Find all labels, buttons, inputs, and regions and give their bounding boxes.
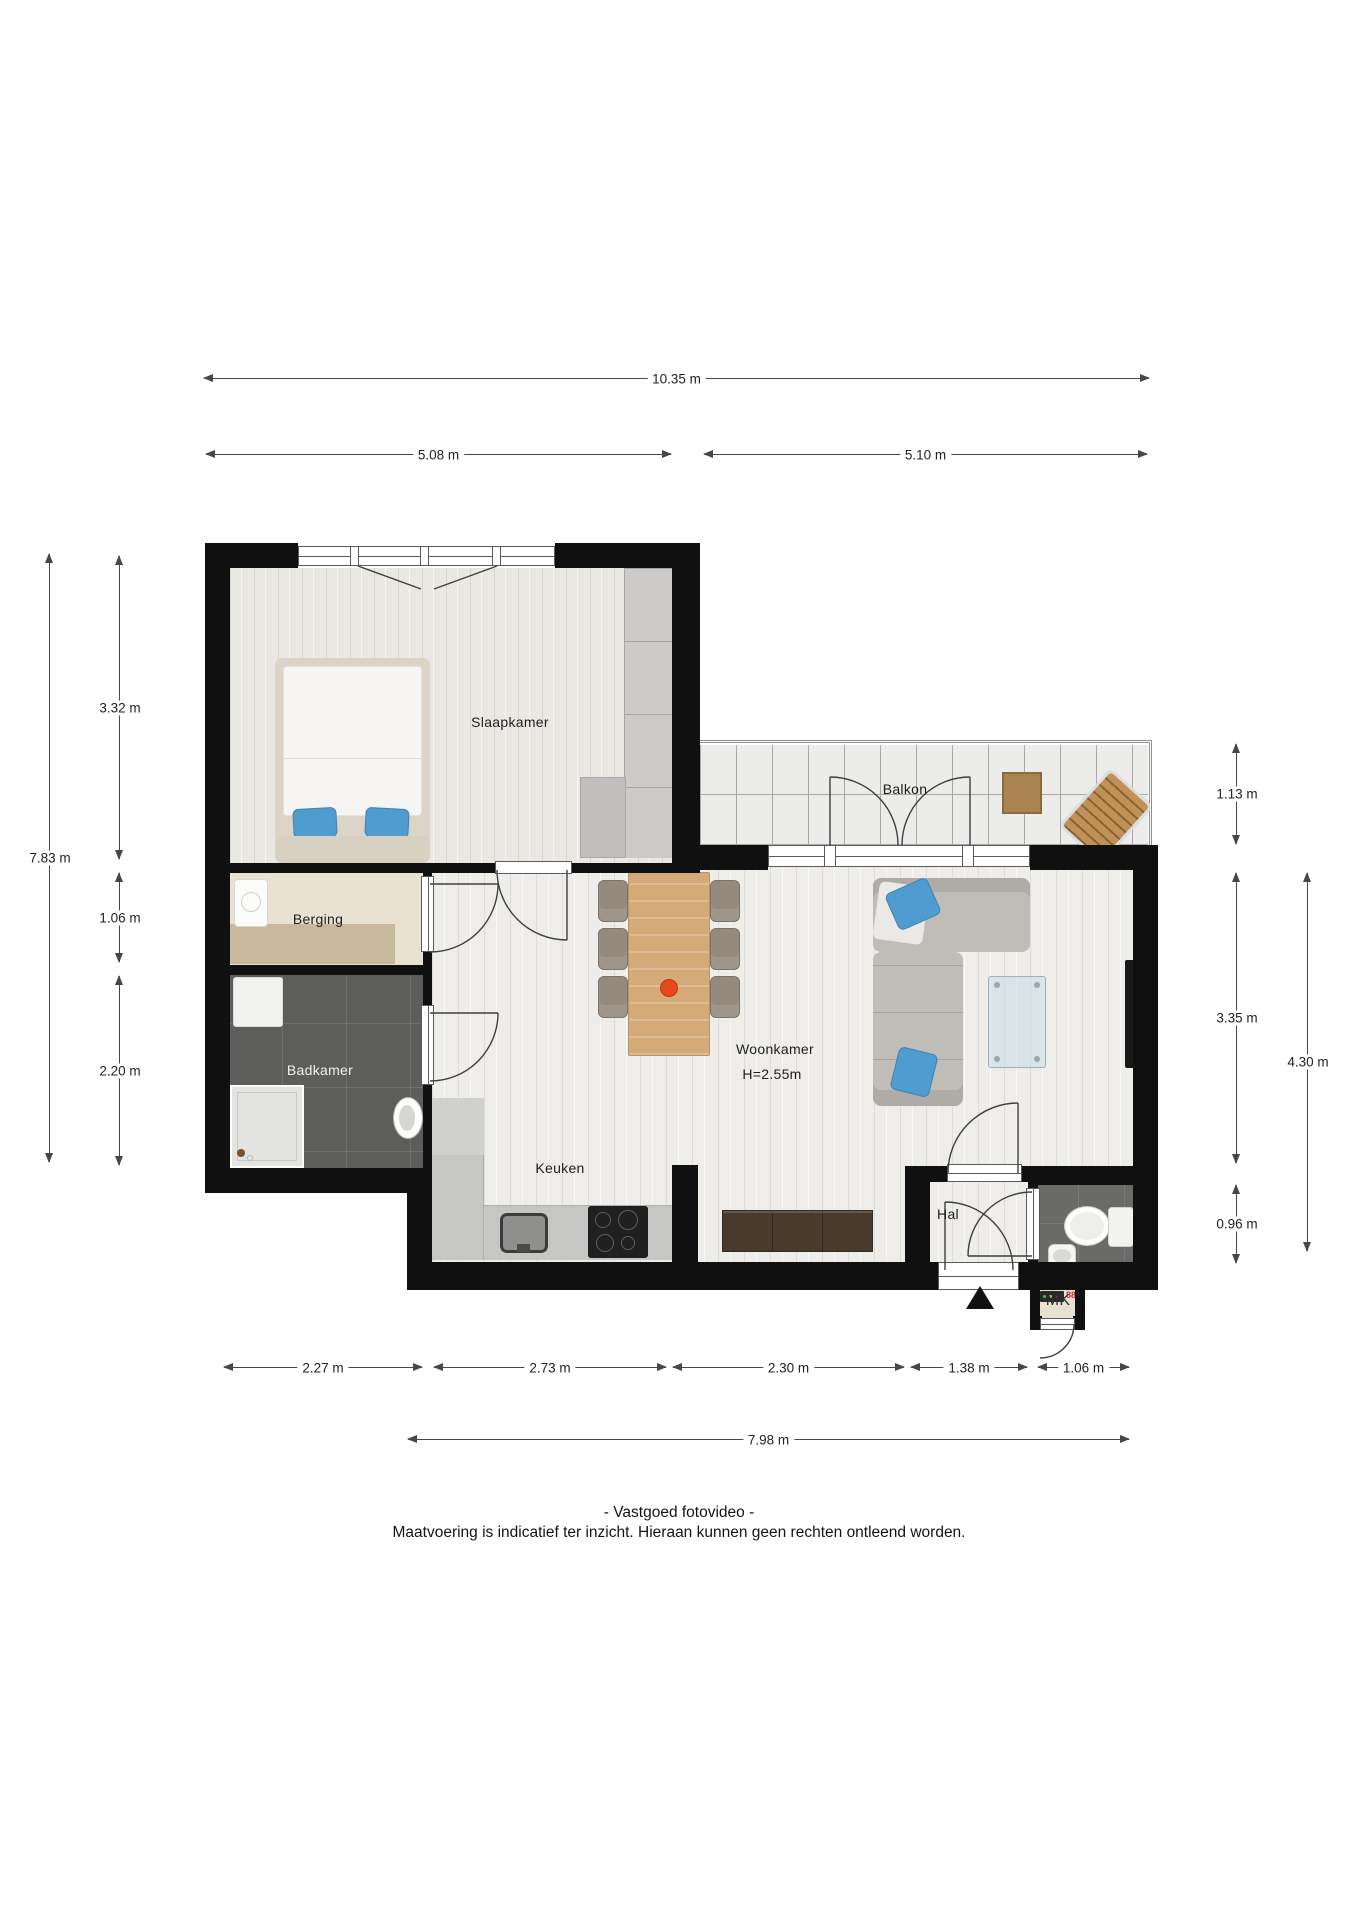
wall-segment <box>205 1168 423 1193</box>
shower-accessory-icon <box>237 1149 245 1157</box>
room-label-hal: Hal <box>937 1206 959 1222</box>
footer-disclaimer: Maatvoering is indicatief ter inzicht. H… <box>0 1524 1358 1542</box>
dim-total-width: 10.35 m <box>203 372 1150 386</box>
room-label-toilet: Toilet <box>1069 1219 1103 1235</box>
wall-segment <box>672 1165 698 1262</box>
dining-chair <box>598 880 628 922</box>
bed-pillow-right <box>364 807 410 839</box>
dim-left-badkamer: 2.20 m <box>113 975 127 1166</box>
room-label-woonkamer-height: H=2.55m <box>742 1066 801 1082</box>
dining-chair <box>710 880 740 922</box>
dim-left-slaapkamer: 3.32 m <box>113 555 127 860</box>
room-label-keuken: Keuken <box>535 1160 584 1176</box>
sideboard <box>722 1210 873 1252</box>
wall-segment <box>205 965 432 975</box>
washing-machine <box>234 879 268 927</box>
toilet-cistern <box>1108 1207 1134 1247</box>
berging-rug <box>230 924 395 964</box>
wall-segment <box>1133 845 1158 1290</box>
footer-credit: - Vastgoed fotovideo - <box>0 1504 1358 1522</box>
dim-right-woonkamer: 3.35 m <box>1230 872 1244 1164</box>
shower-drain-icon <box>247 1155 253 1161</box>
floor-plan-canvas: 88 <box>0 0 1358 1920</box>
room-label-berging: Berging <box>293 911 343 927</box>
dim-left-total: 7.83 m <box>43 553 57 1163</box>
wall-segment <box>1030 845 1133 870</box>
dim-right-total: 4.30 m <box>1301 872 1315 1252</box>
wall-segment <box>407 1262 938 1290</box>
wall-segment <box>1038 1166 1133 1185</box>
room-label-balkon: Balkon <box>883 781 928 797</box>
dining-chair <box>598 928 628 970</box>
wall-segment <box>905 1166 930 1262</box>
window-balkon <box>768 845 1030 867</box>
dim-bottom-hal: 1.38 m <box>910 1361 1028 1375</box>
bathroom-cabinet <box>233 977 283 1027</box>
bed-duvet <box>283 666 422 816</box>
window-mullion <box>492 546 501 566</box>
kitchen-sink <box>500 1213 548 1253</box>
door-opening-hal <box>947 1164 1022 1182</box>
doormat <box>1002 772 1042 814</box>
room-label-badkamer: Badkamer <box>287 1062 353 1078</box>
bed <box>275 658 430 863</box>
bed-footboard <box>275 836 430 863</box>
dim-bottom-badkamer: 2.27 m <box>223 1361 423 1375</box>
door-opening-badkamer <box>421 1005 434 1085</box>
door-opening-meterkast <box>1040 1318 1075 1330</box>
dim-bottom-keuken: 2.73 m <box>433 1361 667 1375</box>
faucet-icon <box>517 1244 530 1252</box>
bed-duvet-fold <box>283 758 422 759</box>
dim-bottom-toilet: 1.06 m <box>1037 1361 1130 1375</box>
door-opening-toilet <box>1026 1188 1040 1260</box>
dim-width-right: 5.10 m <box>703 448 1148 462</box>
wall-segment <box>700 845 768 870</box>
room-label-woonkamer: Woonkamer <box>736 1041 814 1057</box>
cooktop <box>588 1206 648 1258</box>
entrance-arrow-icon <box>966 1286 994 1309</box>
dining-chair <box>598 976 628 1018</box>
dim-width-left: 5.08 m <box>205 448 672 462</box>
kitchen-cabinet-tall <box>432 1098 484 1155</box>
bed-pillow-left <box>292 807 338 839</box>
dining-chair <box>710 976 740 1018</box>
wall-segment <box>1022 1166 1038 1182</box>
door-opening-berging <box>421 876 434 952</box>
wall-segment <box>672 543 700 873</box>
window-mullion <box>420 546 429 566</box>
window-mullion <box>350 546 359 566</box>
wall-segment <box>572 863 700 873</box>
room-label-meterkast: MK <box>1046 1292 1071 1310</box>
dim-right-balkon: 1.13 m <box>1230 743 1244 845</box>
bathroom-sink <box>393 1097 423 1139</box>
door-opening-slaapkamer <box>495 861 572 874</box>
window-mullion <box>824 845 836 867</box>
dim-bottom-woonkamer: 2.30 m <box>672 1361 905 1375</box>
dim-bottom-total: 7.98 m <box>407 1433 1130 1447</box>
dining-table <box>628 872 710 1056</box>
coffee-table <box>988 976 1046 1068</box>
fruit-bowl-icon <box>660 979 678 997</box>
wall-segment <box>205 863 495 873</box>
dim-left-berging: 1.06 m <box>113 872 127 963</box>
dim-right-toilet: 0.96 m <box>1230 1184 1244 1264</box>
wardrobe <box>624 568 672 858</box>
dining-chair <box>710 928 740 970</box>
wardrobe-low-cabinet <box>580 777 626 858</box>
window-mullion <box>962 845 974 867</box>
room-label-slaapkamer: Slaapkamer <box>471 714 549 730</box>
